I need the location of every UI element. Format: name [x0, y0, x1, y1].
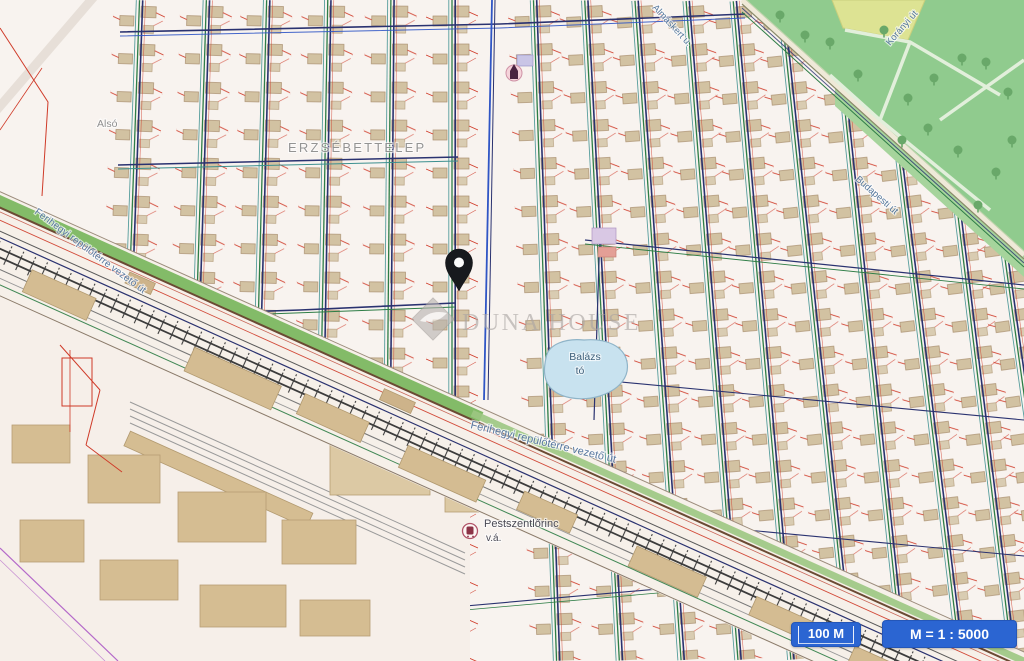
- lake-label-line2: tó: [576, 365, 585, 377]
- lake-label-line1: Balázs: [569, 351, 601, 363]
- public-building: [598, 247, 616, 257]
- public-building: [517, 55, 533, 66]
- public-building: [592, 228, 616, 244]
- station-suffix-label: v.á.: [486, 533, 501, 544]
- scale-ratio-label: M = 1 : 5000: [910, 626, 989, 642]
- scale-bar-label: 100 M: [798, 626, 854, 644]
- map-canvas[interactable]: ERZSÉBETTELEP Alsó Ferihegyi repülőtérre…: [0, 0, 1024, 661]
- map-viewport[interactable]: ERZSÉBETTELEP Alsó Ferihegyi repülőtérre…: [0, 0, 1024, 661]
- train-station-icon: [463, 524, 478, 539]
- street-label-also: Alsó: [97, 118, 118, 130]
- station-label: Pestszentlőrinc: [484, 518, 559, 530]
- district-label: ERZSÉBETTELEP: [288, 140, 426, 155]
- scale-ratio-button[interactable]: M = 1 : 5000: [882, 620, 1017, 648]
- watermark-brand-text: DUNA HOUSE: [462, 310, 641, 336]
- scale-bar-button[interactable]: 100 M: [791, 622, 861, 647]
